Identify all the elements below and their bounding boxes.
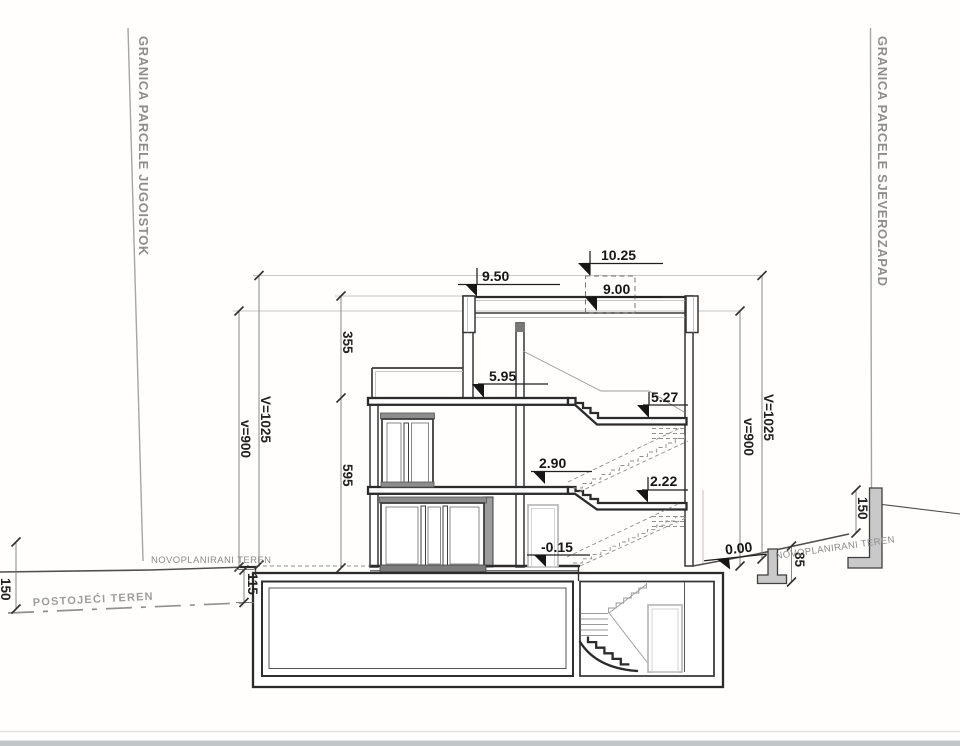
level-label-first-floor: 2.90: [539, 455, 566, 471]
wall-right-outer: [685, 296, 693, 566]
dim-label-v-total-right: V=1025: [761, 394, 776, 441]
boundary-label-right: GRANICA PARCELE SJEVEROZAPAD: [875, 36, 890, 287]
wall-left-outer: [370, 403, 378, 567]
dim-label-v-roof-right: v=900: [741, 418, 756, 456]
dim-label-355: 355: [340, 331, 355, 354]
basement-door: [648, 605, 682, 672]
window-first-floor: [381, 413, 435, 487]
dim-label-595: 595: [340, 464, 355, 487]
dim-label-v-roof-left: v=900: [238, 420, 253, 458]
wall-interior-mid: [516, 404, 524, 488]
wall-interior-low: [516, 492, 524, 567]
terrain-new-right: [693, 505, 960, 567]
level-label-landing-upper: 5.27: [651, 389, 678, 405]
architectural-section-sheet: 10.25 9.50 9.00 5.95 5.27 2.90 2.22 -0.1…: [0, 0, 960, 746]
wall-stub-ground: [484, 497, 493, 567]
level-label-parapet: 10.25: [601, 247, 636, 263]
stair-flight-dashed-lower: [567, 504, 688, 566]
wall-interior-top: [516, 323, 524, 398]
level-label-ground-floor: -0.15: [541, 539, 573, 555]
sheet-bottom-edge: [0, 732, 960, 746]
terrace-parapet: [372, 368, 463, 399]
glass-door-ground-floor: [380, 497, 487, 572]
level-label-roof: 9.00: [603, 281, 630, 297]
dimension-150-left: [12, 538, 21, 614]
level-marker-222: 2.22: [636, 473, 688, 503]
level-marker-000: 0.00: [702, 537, 768, 572]
dim-label-115: 115: [245, 573, 260, 595]
level-marker-595: 5.95: [472, 368, 548, 398]
level-label-roof-edge: 9.50: [482, 268, 509, 284]
level-label-site-zero: 0.00: [724, 539, 753, 558]
level-marker-290: 2.90: [531, 455, 592, 484]
level-label-landing-lower: 2.22: [650, 473, 677, 489]
terrain-label-existing: POSTOJEĆI TEREN: [32, 590, 154, 609]
terrain-label-new-left: NOVOPLANIRANI TEREN: [151, 555, 271, 566]
level-label-top-floor: 5.95: [489, 368, 516, 384]
section-drawing: 10.25 9.50 9.00 5.95 5.27 2.90 2.22 -0.1…: [0, 0, 960, 746]
level-marker-527: 5.27: [637, 389, 688, 418]
dim-label-150-left: 150: [0, 578, 13, 601]
level-marker-950: 9.50: [458, 268, 560, 297]
dim-label-150-right: 150: [855, 497, 870, 520]
level-marker-1025: 10.25: [578, 247, 663, 276]
boundary-label-left: GRANICA PARCELE JUGOISTOK: [136, 36, 151, 256]
parcel-boundary-right: [871, 28, 872, 489]
dim-label-v-total-left: V=1025: [258, 396, 273, 443]
